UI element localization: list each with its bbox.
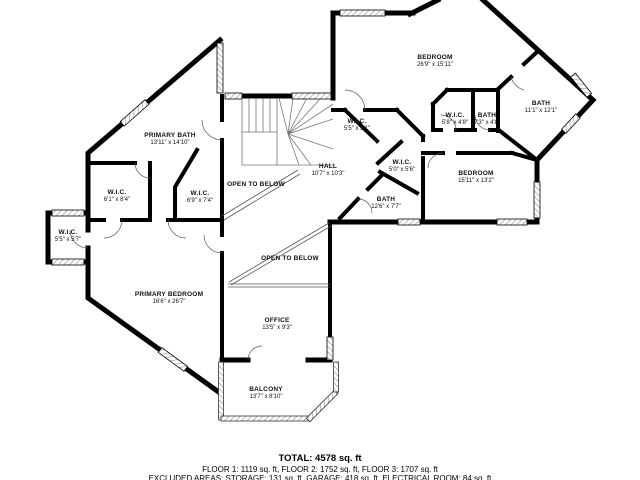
- windows: [52, 10, 592, 371]
- footer-total: TOTAL: 4578 sq. ft: [0, 453, 640, 464]
- floorplan-page: BEDROOM 26'9" x 15'11" BATH 11'1" x 12'1…: [0, 0, 640, 480]
- open-to-below-railings: [222, 170, 331, 287]
- exterior-walls: [48, 0, 593, 393]
- floorplan-drawing: [0, 0, 640, 480]
- stairs: [242, 98, 333, 165]
- balcony-railing: [219, 362, 339, 422]
- footer-excluded: EXCLUDED AREAS: STORAGE: 131 sq. ft, GAR…: [0, 474, 640, 480]
- footer-floors: FLOOR 1: 1119 sq. ft, FLOOR 2: 1752 sq. …: [0, 465, 640, 474]
